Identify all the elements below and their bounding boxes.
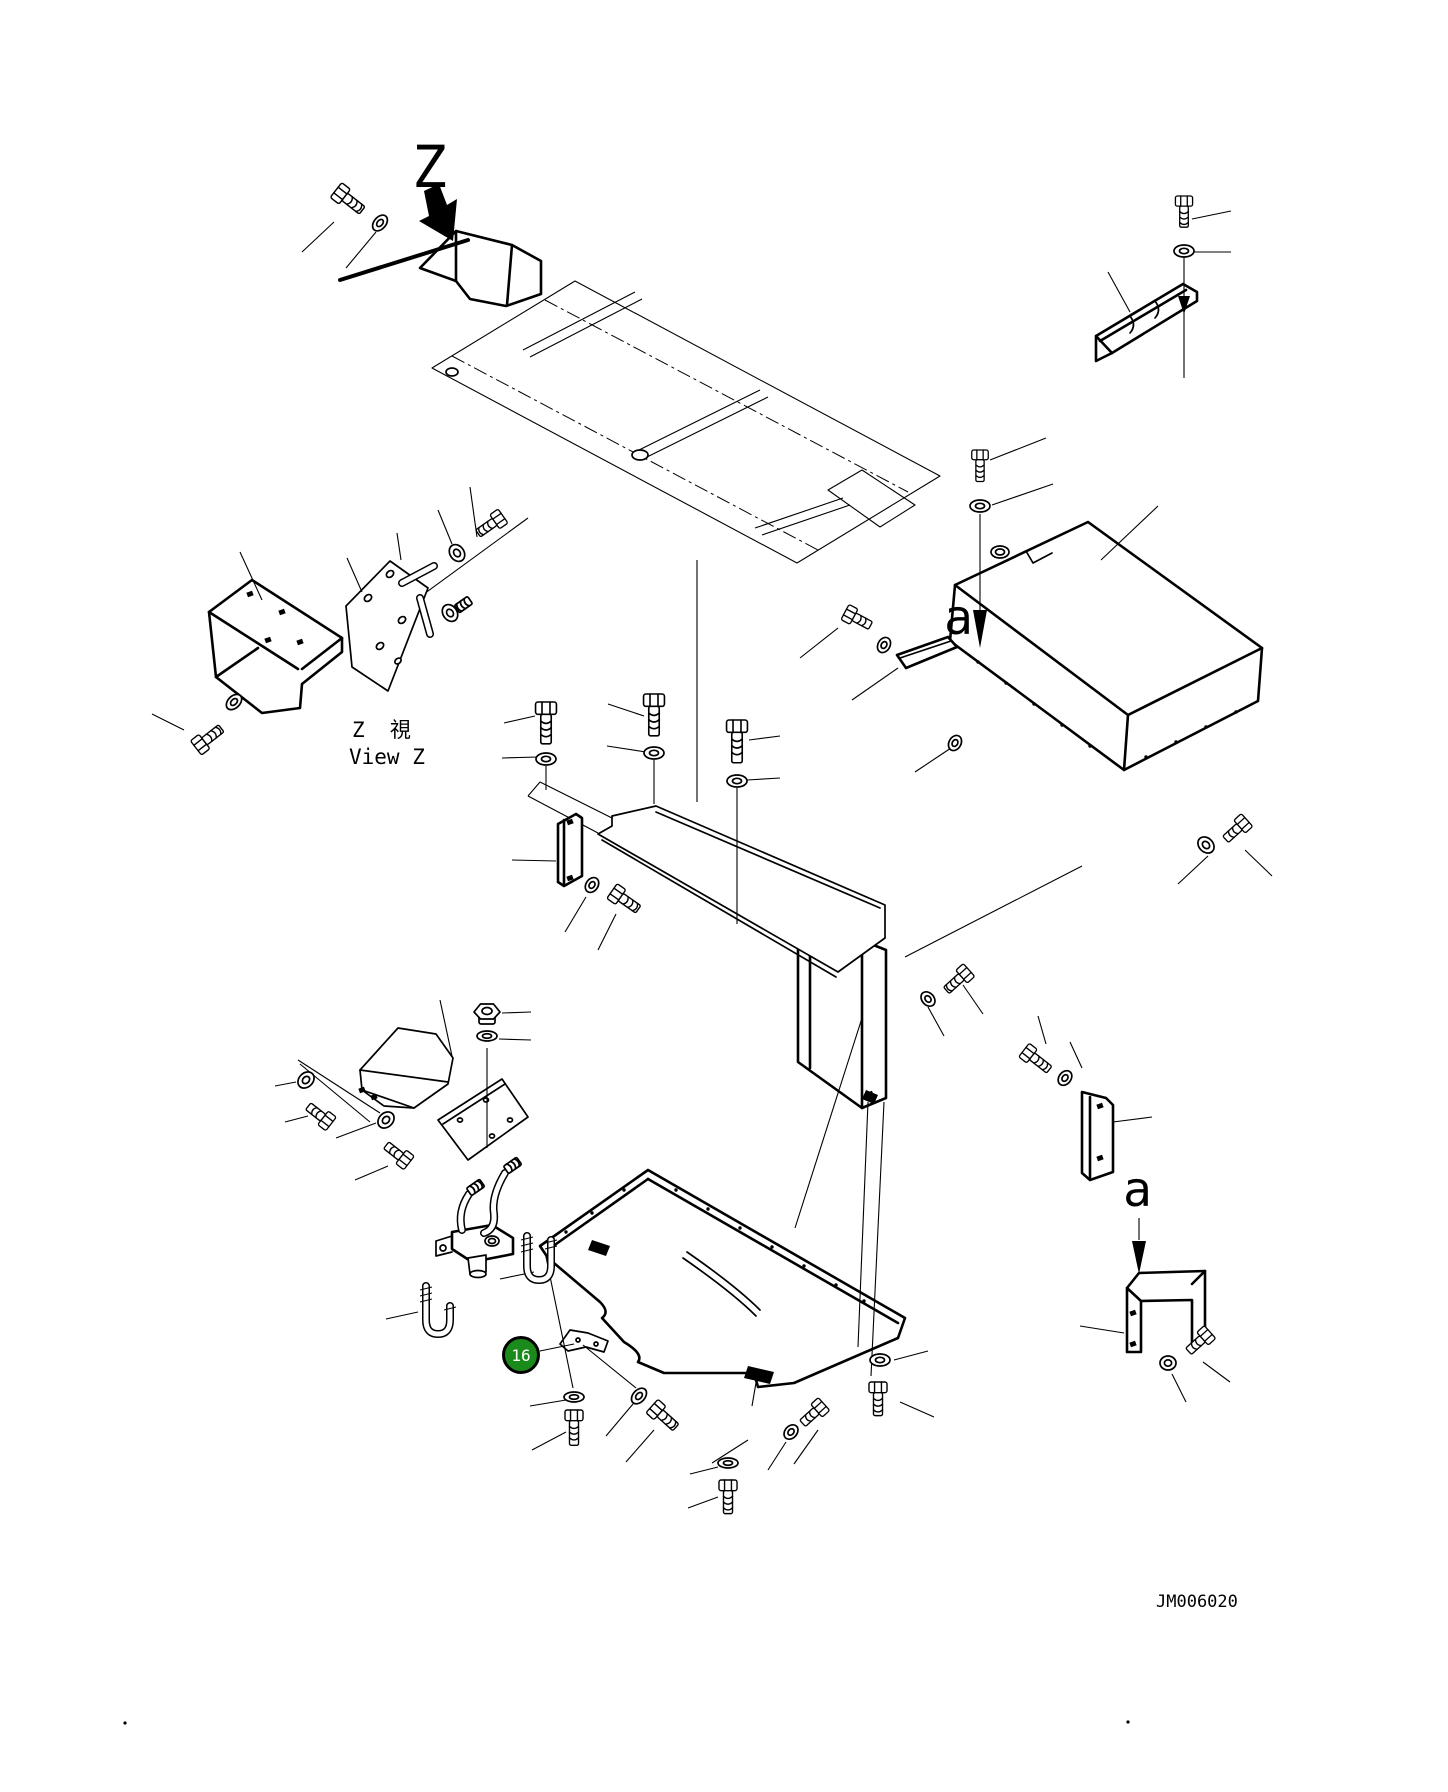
hose-fitting (503, 1157, 521, 1174)
view-z-marker-letter: Z (412, 138, 447, 196)
bolt (644, 694, 665, 736)
bolt (1019, 1043, 1055, 1076)
washer (918, 989, 938, 1009)
washer (1195, 834, 1218, 857)
washer (644, 747, 664, 759)
bolt (565, 1410, 583, 1445)
bolt (190, 721, 226, 755)
hose-fitting (466, 1179, 484, 1196)
washer (870, 1354, 890, 1366)
bolt (473, 509, 508, 541)
washer (629, 1385, 650, 1406)
view-z-caption-japanese: Z 視 (352, 720, 411, 741)
bolt (1175, 196, 1192, 227)
washer (1160, 1356, 1176, 1370)
bolt (1220, 814, 1253, 846)
bolt (797, 1398, 830, 1430)
flange-nut (474, 1004, 500, 1024)
washer (727, 775, 747, 787)
washer (970, 500, 990, 512)
parts-diagram-page: Z Z 視 View Z a a JM006020 16 (0, 0, 1448, 1792)
bolt (719, 1480, 737, 1514)
detail-a-marker-2: a (1123, 1166, 1152, 1214)
washer (1055, 1068, 1074, 1088)
bolt (646, 1399, 682, 1434)
washer (564, 1392, 584, 1402)
part-16-callout-balloon[interactable]: 16 (502, 1336, 540, 1374)
detail-a-marker-1: a (944, 594, 973, 642)
bolt (303, 1099, 336, 1130)
washer (370, 212, 391, 234)
bolt (381, 1138, 414, 1169)
washer (718, 1458, 738, 1468)
washer (295, 1069, 318, 1092)
arrow-marker (1132, 1241, 1146, 1274)
washer (781, 1422, 801, 1442)
bolt (1183, 1326, 1216, 1358)
bolt (727, 720, 748, 763)
washer (582, 875, 601, 895)
washer (536, 753, 556, 765)
bolt (941, 964, 975, 997)
view-z-caption-english: View Z (349, 747, 425, 768)
washer (446, 542, 468, 565)
bolt (841, 604, 875, 633)
exploded-view-drawing (0, 0, 1448, 1792)
bolt (330, 183, 368, 218)
bolt (972, 450, 989, 482)
washer (477, 1031, 497, 1041)
bolt (536, 702, 557, 744)
bolt (869, 1382, 887, 1416)
drawing-number: JM006020 (1156, 1594, 1238, 1611)
washer (1174, 245, 1194, 257)
bolt (607, 884, 644, 917)
washer (875, 635, 893, 655)
